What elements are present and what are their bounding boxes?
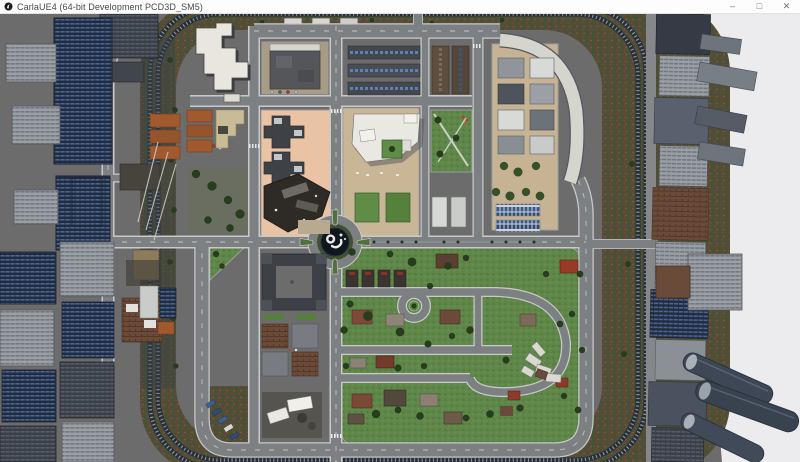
window-controls: – □ ✕ [719, 0, 800, 13]
minimize-button[interactable]: – [719, 0, 746, 13]
window-title: CarlaUE4 (64-bit Development PCD3D_SM5) [17, 2, 203, 12]
simulation-viewport[interactable] [0, 14, 800, 462]
unreal-engine-icon [4, 2, 13, 11]
maximize-button[interactable]: □ [746, 0, 773, 13]
courtyard-apartment-block [262, 254, 326, 310]
close-button[interactable]: ✕ [773, 0, 800, 13]
flat-roof-building [270, 44, 320, 94]
app-window: CarlaUE4 (64-bit Development PCD3D_SM5) … [0, 0, 800, 462]
title-bar: CarlaUE4 (64-bit Development PCD3D_SM5) … [0, 0, 800, 14]
